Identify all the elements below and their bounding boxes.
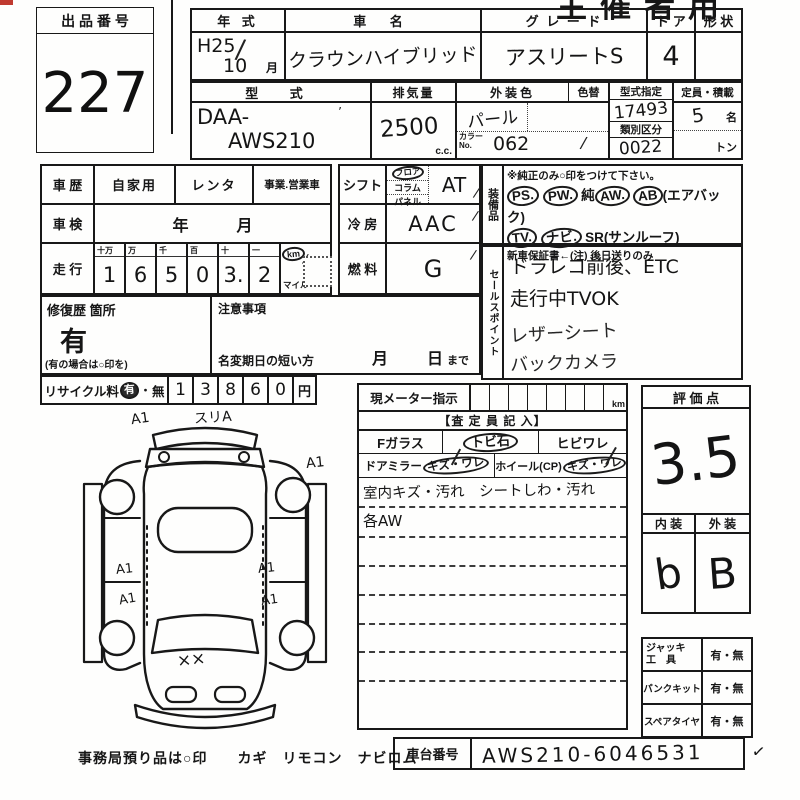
damage-note-front-right: A1 (305, 454, 325, 472)
damage-note-front-top: スリA (193, 406, 232, 429)
repair-caution-box: 修復歴 箇所 有 (有の場合は○印を) 注意事項 名変期日の短い方 月 日 まで (40, 295, 481, 375)
ac-value: AAC (408, 212, 458, 236)
year-label: 年 式 (192, 10, 286, 33)
wheel-label: ホイール(CP) (495, 458, 562, 474)
puncture-kit-value: 有・無 (703, 672, 751, 703)
blank-rule (359, 538, 626, 567)
history-private: 自家用 (95, 166, 176, 203)
fuel-label: 燃 料 (340, 244, 387, 293)
type-designation-value: 17493 (613, 98, 669, 124)
repair-value: 有 (60, 320, 87, 359)
class-label: 類別区分 (610, 121, 672, 138)
shift-value: AT (442, 173, 466, 197)
repair-note: (有の場合は○印を) (45, 356, 128, 371)
header-table: 年 式 車 名 グ レ ー ド ド ア 形 状 H25 / 10 月 クラウンハ… (190, 8, 743, 81)
door-value: 4 (648, 33, 696, 79)
load-unit: トン (715, 139, 737, 155)
meter-unit: km (612, 399, 625, 409)
score-label: 評 価 点 (643, 387, 749, 409)
door-label: ド ア (648, 10, 696, 33)
inspection-year: 年 (172, 212, 188, 236)
damage-note-trunk: ×× (176, 649, 206, 672)
class-value: 0022 (619, 137, 664, 160)
recycle-digit: 1 (169, 377, 194, 403)
capacity-unit: 名 (726, 109, 737, 125)
sales-point-line: レザーシート (509, 310, 735, 348)
chassis-number-row: 車台番号 AWS210-6046531 (393, 737, 745, 770)
assessor-title: 【査 定 員 記 入】 (359, 412, 626, 431)
sales-point-line: 走行中TVOK (510, 284, 735, 311)
pen-tick: / (472, 186, 480, 202)
pen-tick: / (469, 248, 477, 264)
color-no-value: 062 (493, 133, 529, 155)
history-table: 車 歴 自家用 レンタ 事業.営業車 車 検 年 月 走 行 十万1 万6 千5… (40, 164, 332, 295)
blank-rule (359, 596, 626, 625)
red-edge-mark (0, 0, 13, 5)
exterior-value: B (706, 548, 738, 599)
mirror-label: ドアミラー (365, 458, 422, 474)
name-value: クラウンハイブリッド (286, 33, 482, 79)
displacement-unit: c.c. (435, 146, 452, 157)
puncture-kit-label: パンクキット (643, 672, 703, 703)
capacity-label: 定員・積載 (674, 83, 741, 103)
mileage-digit: 2 (250, 257, 279, 293)
score-value: 3.5 (648, 423, 744, 498)
shift-label: シフト (340, 166, 387, 203)
history-commercial: 事業.営業車 (254, 166, 330, 203)
damage-note-left-door-1: A1 (115, 561, 134, 578)
model-value-2: AWS210 (228, 129, 315, 153)
recycle-fee-row: リサイクル料 有・無 1 3 8 6 0 円 (40, 375, 317, 405)
jack-tools-value: 有・無 (703, 639, 751, 670)
dotted-box (303, 256, 332, 287)
color-change-label: 色替 (569, 83, 608, 101)
damage-note-front-left: A1 (130, 410, 151, 428)
damage-note-left-door-2: A1 (118, 591, 138, 609)
year-value: H25 / 10 月 (192, 33, 286, 79)
recycle-digit: 6 (244, 377, 269, 403)
spare-tire-value: 有・無 (703, 705, 751, 736)
grade-label: グ レ ー ド (482, 10, 648, 33)
transfer-note: 名変期日の短い方 (218, 352, 314, 369)
equipment-row2: TV. ナビ. SR(サンルーフ) (507, 226, 738, 248)
sales-point-box: セールスポイント ドラレコ前後、ETC 走行中TVOK レザーシート バックカメ… (481, 245, 743, 380)
equipment-note: ※純正のみ○印をつけて下さい。 (507, 168, 738, 183)
recycle-unit: 円 (294, 377, 315, 403)
mileage-digit: 0 (188, 257, 217, 293)
mileage-digit: 5 (157, 257, 186, 293)
shape-value (696, 33, 741, 79)
model-value-1: DAA- (197, 105, 249, 129)
shape-label: 形 状 (696, 10, 741, 33)
sales-point-line: バックカメラ (510, 343, 736, 377)
assessor-note-2: 各AW (363, 512, 402, 530)
accessories-box: ジャッキ工 具 有・無 パンクキット 有・無 スペアタイヤ 有・無 (641, 637, 753, 738)
footer-note: 事務局預り品は○印 カギ リモコン ナビロム (78, 748, 417, 768)
blank-rule (359, 567, 626, 596)
inspection-month: 月 (237, 212, 253, 236)
meter-title: 現メーター指示 (359, 385, 469, 410)
recycle-no: 無 (152, 381, 165, 400)
displacement-label: 排気量 (372, 83, 455, 103)
mileage-label: 走 行 (42, 244, 95, 293)
color-no-label: カラーNo. (459, 133, 483, 151)
grade-value: アスリートS (482, 33, 648, 79)
assessor-panel: 現メーター指示 km 【査 定 員 記 入】 Fガラス トビ石 ヒビワレ ドアミ… (357, 383, 628, 730)
caution-day: 日 (427, 345, 443, 369)
interior-value: b (652, 547, 685, 599)
history-label: 車 歴 (42, 166, 95, 203)
stone-chip-label: トビ石 (463, 431, 519, 453)
recycle-yes: 有 (119, 381, 139, 399)
capacity-value: 5 (691, 104, 706, 127)
lot-number-box: 出 品 番 号 227 (36, 7, 154, 153)
recycle-digit: 3 (194, 377, 219, 403)
type-designation-label: 型式指定 (610, 83, 672, 100)
divider-line (171, 0, 173, 134)
name-label: 車 名 (286, 10, 482, 33)
displacement-value: 2500 (379, 113, 439, 143)
model-label: 型 式 (192, 83, 370, 103)
damage-note-right-door-2: A1 (260, 592, 279, 609)
ac-label: 冷 房 (340, 205, 387, 242)
sales-point-line: ドラレコ前後、ETC (510, 252, 735, 279)
caution-label: 注意事項 (218, 300, 266, 317)
mileage-digit: 1 (95, 257, 124, 293)
blank-rule (359, 653, 626, 682)
repair-label: 修復歴 箇所 (47, 300, 116, 319)
equipment-row1: PS. PW. 純AW. AB(エアバック) (507, 184, 738, 226)
pen-tick: / (471, 209, 479, 225)
fuel-value: G (424, 255, 443, 283)
interior-label: 内 装 (643, 515, 696, 532)
history-rental: レンタ (176, 166, 254, 203)
car-damage-diagram (70, 408, 340, 738)
wheel-damage: キズ・ワレ (562, 454, 626, 476)
assessor-note-1: 室内キズ・汚れ シートしわ・汚れ (363, 478, 595, 503)
caution-until: まで (447, 352, 469, 368)
chassis-value: AWS210-6046531 (482, 740, 704, 768)
equipment-box: 装備品 ※純正のみ○印をつけて下さい。 PS. PW. 純AW. AB(エアバッ… (481, 164, 743, 245)
blank-rule (359, 625, 626, 653)
jack-tools-label: ジャッキ工 具 (643, 639, 703, 670)
lot-number-label: 出 品 番 号 (37, 8, 153, 34)
mileage-digit: 3. (219, 257, 248, 293)
pen-checkmark: ✓ (751, 741, 767, 762)
spare-tire-label: スペアタイヤ (643, 705, 703, 736)
mileage-digit: 6 (126, 257, 155, 293)
fglass-label: Fガラス (359, 431, 443, 453)
damage-note-right-door-1: A1 (257, 560, 276, 577)
color-value: パール (466, 102, 519, 132)
shift-options: フロア コラム パネル (387, 166, 429, 203)
exterior-label: 外 装 (696, 515, 749, 532)
sales-point-label: セールスポイント (483, 247, 504, 378)
score-panel: 評 価 点 3.5 内 装 外 装 b B (641, 385, 751, 614)
recycle-digit: 8 (219, 377, 244, 403)
caution-month: 月 (372, 345, 388, 369)
inspection-label: 車 検 (42, 205, 95, 242)
spec-table: 型 式 DAA- AWS210 ’ 排気量 2500 c.c. 外装色 色替 パ… (190, 81, 743, 160)
equipment-label: 装備品 (483, 166, 504, 243)
color-label: 外装色 (457, 83, 569, 101)
pen-mark: ’ (338, 105, 342, 119)
recycle-label: リサイクル料 (45, 381, 119, 400)
shift-table: シフト フロア コラム パネル AT / 冷 房 AAC / 燃 料 G / (338, 164, 481, 295)
recycle-digit: 0 (269, 377, 294, 403)
lot-number-value: 227 (42, 61, 149, 126)
pen-tick: / (579, 133, 588, 153)
